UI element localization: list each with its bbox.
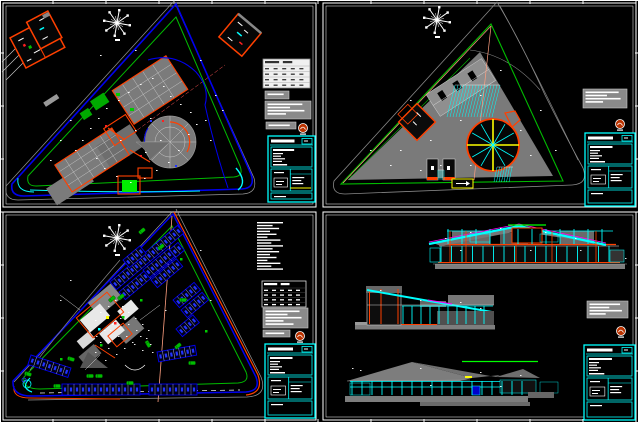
site-boundaries <box>13 209 263 402</box>
section-1 <box>429 224 627 269</box>
car-symbol <box>180 298 187 302</box>
north-compass-icon <box>103 9 131 41</box>
parking-row <box>149 384 197 395</box>
area-schedule-table <box>263 59 310 88</box>
entry-arrow <box>452 179 473 188</box>
sheet-sections-elevations[interactable] <box>323 212 636 420</box>
car-symbol <box>189 361 196 365</box>
site-paving <box>333 2 584 194</box>
parking-row <box>28 355 71 377</box>
title-block <box>584 345 635 420</box>
general-notes-text <box>257 222 283 270</box>
elevation-3 <box>345 362 558 407</box>
approval-stamp-icon <box>616 120 625 131</box>
notes-box <box>265 91 289 99</box>
notes-box <box>266 122 296 129</box>
title-block <box>585 133 635 206</box>
main-building-plan <box>60 283 160 370</box>
sheet-site-plan-ground[interactable] <box>2 1 316 207</box>
section-2 <box>355 286 495 330</box>
road-edge-orange <box>174 212 260 395</box>
notes-box <box>265 101 311 119</box>
title-block <box>265 344 315 418</box>
notes-box <box>263 330 290 337</box>
notes-box <box>587 301 628 318</box>
car-symbol <box>96 374 103 378</box>
detail-plan-kiosk <box>219 14 261 56</box>
car-symbol <box>138 227 146 234</box>
north-compass-icon <box>423 6 451 38</box>
notes-box <box>583 89 627 108</box>
courtyard-green <box>122 180 137 192</box>
column-row <box>352 381 522 395</box>
approval-stamp-icon <box>299 124 308 135</box>
car-symbol <box>54 384 61 388</box>
approval-stamp-icon <box>296 332 305 343</box>
detail-plan-annex <box>7 11 66 68</box>
title-block <box>268 136 315 202</box>
approval-stamp-icon <box>617 327 626 338</box>
sheet-site-plan-roof[interactable] <box>323 2 636 207</box>
area-schedule-table <box>262 281 306 307</box>
sheet-site-plan-parking[interactable] <box>3 209 316 420</box>
car-symbol <box>67 356 75 362</box>
car-symbol <box>87 374 94 378</box>
notes-box <box>263 308 308 328</box>
car-symbol <box>127 381 134 385</box>
parking-row <box>176 315 199 337</box>
north-compass-icon <box>103 224 131 256</box>
parking-row <box>62 384 140 395</box>
cad-drawing-canvas <box>0 0 639 423</box>
drawing-svg <box>0 0 639 423</box>
